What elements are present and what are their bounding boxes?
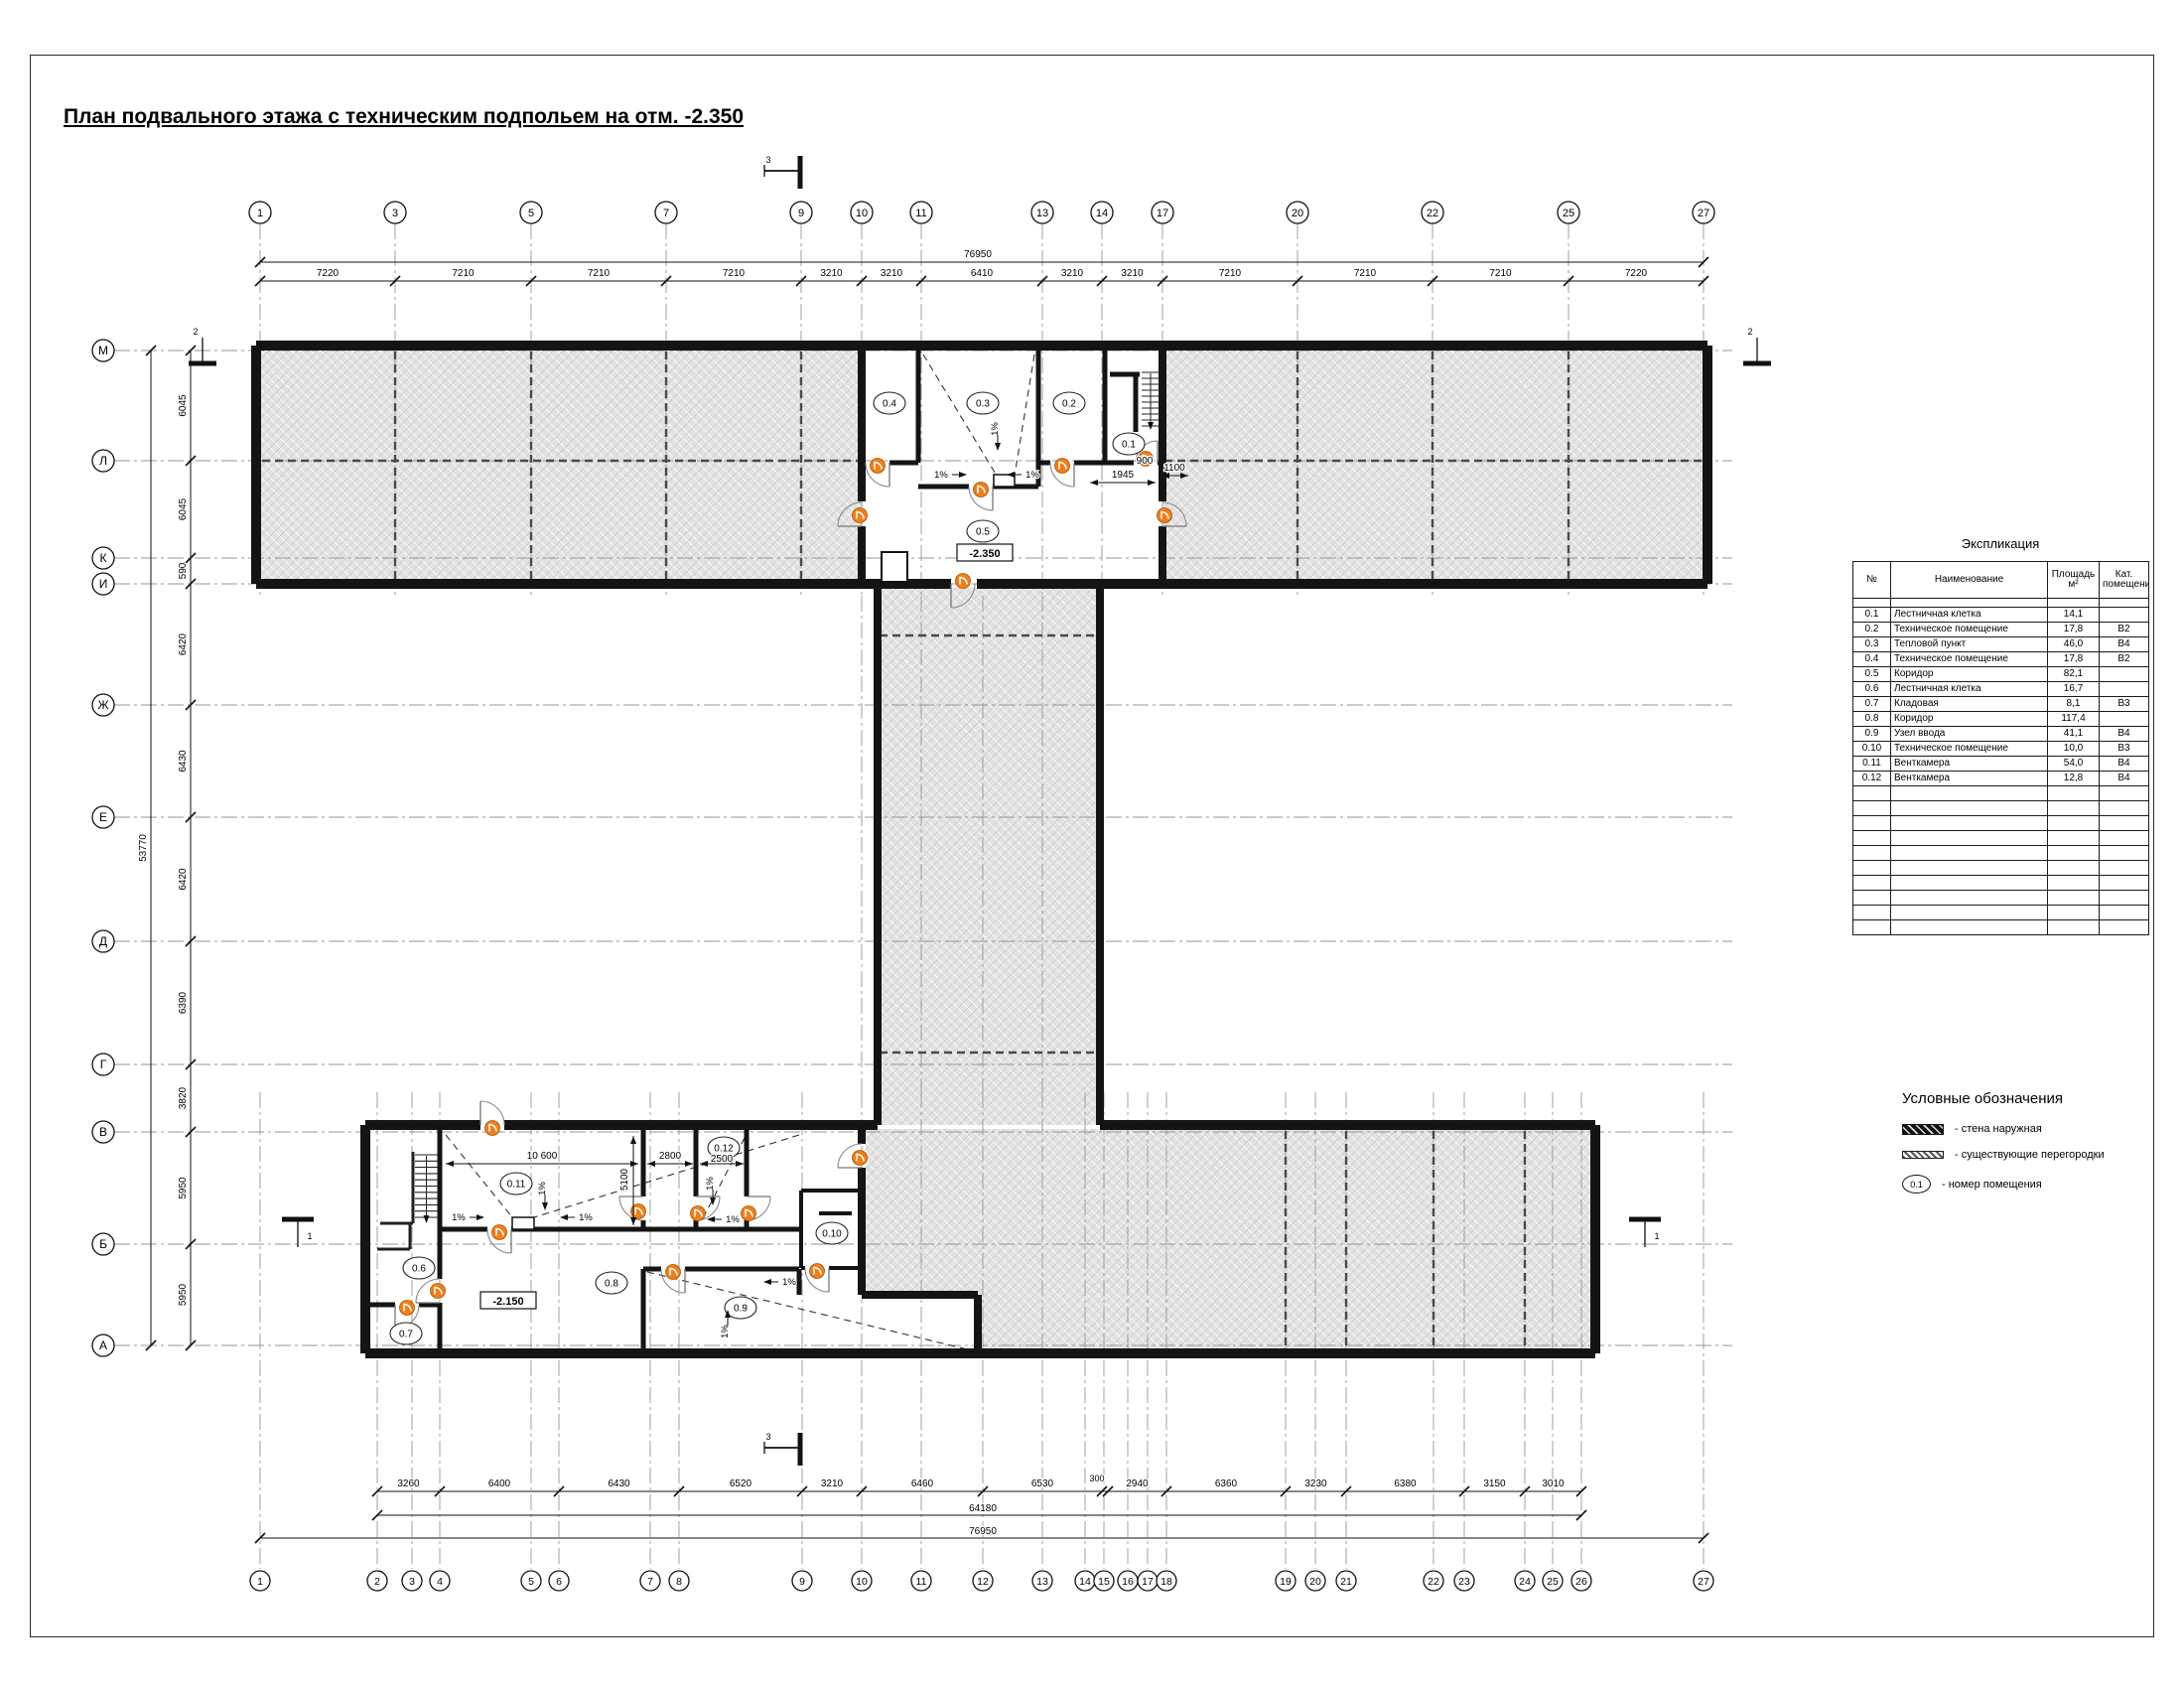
svg-text:7: 7 (663, 208, 669, 219)
axis-bubble-bottom: 7 (640, 1571, 660, 1591)
table-cell (2100, 608, 2149, 623)
svg-text:7: 7 (647, 1576, 653, 1588)
svg-text:1: 1 (307, 1231, 312, 1241)
explication-title: Экспликация (1852, 536, 2148, 551)
legend-item-label: - стена наружная (1955, 1123, 2042, 1135)
door-marker-icon (974, 483, 989, 497)
axis-bubble-top: 14 (1091, 202, 1113, 223)
table-cell: 82,1 (2048, 667, 2100, 682)
table-cell: 0.8 (1853, 712, 1891, 727)
svg-text:0.7: 0.7 (399, 1330, 413, 1340)
svg-text:6360: 6360 (1215, 1478, 1238, 1489)
svg-text:3260: 3260 (397, 1478, 420, 1489)
table-cell: 0.1 (1853, 608, 1891, 623)
axis-bubble-bottom: 10 (852, 1571, 872, 1591)
table-cell: В3 (2100, 697, 2149, 712)
outer-wall-swatch-icon (1902, 1124, 1944, 1135)
svg-text:16: 16 (1122, 1576, 1134, 1588)
svg-text:12: 12 (977, 1576, 989, 1588)
svg-text:3210: 3210 (820, 268, 843, 279)
axis-bubble-bottom: 22 (1424, 1571, 1443, 1591)
table-row: 0.2Техническое помещение17,8В2 (1853, 623, 2149, 637)
door-marker-icon (485, 1121, 500, 1136)
level-mark: -2.150 (480, 1292, 536, 1309)
table-cell: 0.2 (1853, 623, 1891, 637)
room-number-label: 0.2 (1053, 392, 1085, 414)
axis-bubble-top: 1 (249, 202, 271, 223)
table-empty-row (1853, 831, 2149, 846)
svg-text:Е: Е (99, 810, 107, 824)
svg-text:15: 15 (1098, 1576, 1110, 1588)
svg-text:М: М (98, 344, 108, 357)
svg-text:13: 13 (1036, 1576, 1048, 1588)
table-cell: 17,8 (2048, 652, 2100, 667)
svg-text:7210: 7210 (1219, 268, 1242, 279)
section-marker: 3 (764, 1432, 800, 1466)
table-empty-row (1853, 846, 2149, 861)
explication-header: №НаименованиеПлощадь м²Кат. помещения (1853, 562, 2149, 599)
svg-text:6420: 6420 (178, 633, 189, 655)
table-cell: 0.7 (1853, 697, 1891, 712)
room-number-label: 0.8 (596, 1272, 627, 1294)
drawing-sheet: План подвального этажа с техническим под… (0, 0, 2184, 1688)
axis-bubble-bottom: 6 (549, 1571, 569, 1591)
table-cell: Лестничная клетка (1891, 608, 2048, 623)
axis-bubble-left: И (92, 573, 114, 595)
table-cell: В4 (2100, 772, 2149, 786)
svg-text:2500: 2500 (711, 1154, 734, 1165)
axis-system-top: 7695072207210721072103210321064103210321… (249, 202, 1714, 286)
axis-bubble-top: 5 (520, 202, 542, 223)
room-number-label: 0.3 (967, 392, 999, 414)
svg-text:5950: 5950 (178, 1283, 189, 1306)
table-cell (2100, 667, 2149, 682)
table-empty-row (1853, 891, 2149, 906)
table-cell: 14,1 (2048, 608, 2100, 623)
svg-text:590: 590 (178, 562, 189, 579)
svg-text:5: 5 (528, 1576, 534, 1588)
axis-bubble-left: К (92, 547, 114, 569)
svg-text:0.10: 0.10 (822, 1229, 842, 1240)
section-marker: 3 (764, 155, 800, 189)
table-row: 0.6Лестничная клетка16,7 (1853, 682, 2149, 697)
axis-bubble-left: А (92, 1335, 114, 1356)
svg-text:0.2: 0.2 (1062, 399, 1076, 410)
axis-bubble-top: 25 (1558, 202, 1579, 223)
svg-text:Д: Д (99, 934, 107, 948)
table-cell: 8,1 (2048, 697, 2100, 712)
axis-bubble-top: 9 (790, 202, 812, 223)
table-cell: Тепловой пункт (1891, 637, 2048, 652)
svg-text:27: 27 (1698, 208, 1709, 219)
svg-text:3820: 3820 (178, 1086, 189, 1109)
svg-text:76950: 76950 (969, 1526, 997, 1537)
axis-bubble-bottom: 19 (1276, 1571, 1296, 1591)
svg-text:6520: 6520 (730, 1478, 752, 1489)
door-marker-icon (853, 508, 868, 523)
svg-text:-2.150: -2.150 (492, 1296, 523, 1308)
svg-text:7220: 7220 (1625, 268, 1648, 279)
svg-text:24: 24 (1519, 1576, 1531, 1588)
axis-bubble-left: Д (92, 930, 114, 952)
svg-text:6460: 6460 (911, 1478, 934, 1489)
svg-text:3210: 3210 (881, 268, 903, 279)
svg-text:1%: 1% (934, 470, 948, 481)
table-cell: Техническое помещение (1891, 652, 2048, 667)
svg-text:3: 3 (765, 155, 770, 165)
section-marker: 1 (1629, 1219, 1661, 1247)
room-number-label: 0.7 (390, 1323, 422, 1344)
table-cell (2100, 712, 2149, 727)
room-number-label: 0.4 (874, 392, 905, 414)
door-marker-icon (810, 1264, 825, 1279)
axis-bubble-bottom: 8 (669, 1571, 689, 1591)
svg-text:22: 22 (1428, 1576, 1439, 1588)
axis-bubble-left: М (92, 340, 114, 361)
table-row: 0.3Тепловой пункт46,0В4 (1853, 637, 2149, 652)
door-marker-icon (1055, 459, 1070, 474)
svg-text:3: 3 (765, 1432, 770, 1442)
axis-bubble-top: 20 (1287, 202, 1308, 223)
svg-text:0.11: 0.11 (507, 1180, 526, 1191)
table-cell: 54,0 (2048, 757, 2100, 772)
table-cell: В2 (2100, 652, 2149, 667)
axis-bubble-bottom: 18 (1157, 1571, 1176, 1591)
table-row: 0.8Коридор117,4 (1853, 712, 2149, 727)
legend-title: Условные обозначения (1902, 1090, 2105, 1107)
svg-text:300: 300 (1089, 1474, 1104, 1483)
svg-text:1: 1 (257, 1576, 263, 1588)
svg-text:3: 3 (392, 208, 398, 219)
svg-text:10: 10 (856, 208, 868, 219)
partition-swatch-icon (1902, 1151, 1944, 1159)
axis-bubble-top: 22 (1422, 202, 1443, 223)
axis-bubble-left: В (92, 1121, 114, 1143)
table-row: 0.7Кладовая8,1В3 (1853, 697, 2149, 712)
svg-text:25: 25 (1563, 208, 1574, 219)
legend-item-outer-wall: - стена наружная (1902, 1123, 2105, 1135)
svg-text:7210: 7210 (1354, 268, 1377, 279)
table-row: 0.11Венткамера54,0В4 (1853, 757, 2149, 772)
svg-text:18: 18 (1160, 1576, 1172, 1588)
table-cell: 17,8 (2048, 623, 2100, 637)
svg-text:19: 19 (1280, 1576, 1292, 1588)
table-cell: 0.4 (1853, 652, 1891, 667)
table-cell: Коридор (1891, 667, 2048, 682)
svg-text:8: 8 (676, 1576, 682, 1588)
svg-text:10 600: 10 600 (527, 1151, 558, 1162)
door-marker-icon (431, 1284, 446, 1299)
table-cell: 0.9 (1853, 727, 1891, 742)
axis-bubble-bottom: 20 (1305, 1571, 1325, 1591)
svg-text:53770: 53770 (138, 834, 149, 862)
table-cell: В3 (2100, 742, 2149, 757)
technical-underground-hatch (260, 350, 1704, 1349)
svg-text:1%: 1% (705, 1177, 716, 1191)
table-cell: 0.12 (1853, 772, 1891, 786)
table-cell: 12,8 (2048, 772, 2100, 786)
svg-text:64180: 64180 (969, 1503, 997, 1514)
table-cell: Коридор (1891, 712, 2048, 727)
level-mark: -2.350 (957, 544, 1013, 561)
axis-bubble-bottom: 25 (1543, 1571, 1563, 1591)
svg-text:2: 2 (193, 327, 198, 337)
axis-system-bottom: 3260640064306520321064606530300294063603… (250, 1474, 1713, 1591)
door-marker-icon (691, 1206, 706, 1221)
svg-text:0.9: 0.9 (734, 1304, 748, 1315)
svg-text:5950: 5950 (178, 1177, 189, 1199)
axis-bubble-bottom: 21 (1336, 1571, 1356, 1591)
svg-text:23: 23 (1458, 1576, 1470, 1588)
svg-text:900: 900 (1137, 456, 1154, 467)
svg-text:1%: 1% (537, 1182, 548, 1196)
svg-text:6: 6 (556, 1576, 562, 1588)
axis-bubble-bottom: 1 (250, 1571, 270, 1591)
svg-text:1%: 1% (1025, 470, 1039, 481)
svg-text:1: 1 (257, 208, 263, 219)
explication-col-header: Кат. помещения (2100, 562, 2149, 599)
table-cell: Венткамера (1891, 772, 2048, 786)
svg-text:Л: Л (99, 454, 107, 468)
svg-text:6430: 6430 (178, 750, 189, 773)
svg-text:0.4: 0.4 (883, 399, 896, 410)
axis-bubble-bottom: 15 (1094, 1571, 1114, 1591)
svg-text:0.8: 0.8 (605, 1279, 618, 1290)
room-number-label: 0.5 (967, 520, 999, 542)
axis-bubble-top: 27 (1693, 202, 1714, 223)
svg-text:4: 4 (437, 1576, 443, 1588)
axis-bubble-top: 3 (384, 202, 406, 223)
svg-text:6380: 6380 (1394, 1478, 1417, 1489)
legend-item-partition: - существующие перегородки (1902, 1149, 2105, 1161)
svg-text:7220: 7220 (317, 268, 340, 279)
table-cell: 0.10 (1853, 742, 1891, 757)
door-marker-icon (956, 574, 971, 589)
axis-bubble-bottom: 12 (973, 1571, 993, 1591)
axis-bubble-left: Ж (92, 694, 114, 716)
svg-text:3210: 3210 (1061, 268, 1084, 279)
svg-text:1%: 1% (579, 1212, 593, 1223)
table-row: 0.12Венткамера12,8В4 (1853, 772, 2149, 786)
svg-text:3: 3 (409, 1576, 415, 1588)
svg-text:0.3: 0.3 (976, 399, 990, 410)
svg-text:20: 20 (1292, 208, 1303, 219)
room-number-label: 0.11 (500, 1173, 532, 1195)
axis-bubble-bottom: 9 (792, 1571, 812, 1591)
svg-text:26: 26 (1575, 1576, 1587, 1588)
svg-text:1100: 1100 (1163, 463, 1185, 474)
svg-text:6530: 6530 (1031, 1478, 1054, 1489)
svg-text:3150: 3150 (1483, 1478, 1506, 1489)
table-cell: 0.3 (1853, 637, 1891, 652)
room-number-label: 0.6 (403, 1257, 435, 1279)
svg-text:Ж: Ж (97, 698, 108, 712)
svg-text:0.5: 0.5 (976, 527, 990, 538)
table-cell: В4 (2100, 727, 2149, 742)
table-cell: Техническое помещение (1891, 623, 2048, 637)
svg-text:13: 13 (1036, 208, 1048, 219)
svg-text:9: 9 (799, 1576, 805, 1588)
svg-text:11: 11 (915, 208, 926, 219)
svg-text:И: И (99, 577, 108, 591)
table-empty-row (1853, 861, 2149, 876)
explication-col-header: Площадь м² (2048, 562, 2100, 599)
table-cell: Кладовая (1891, 697, 2048, 712)
axis-bubble-bottom: 5 (521, 1571, 541, 1591)
svg-text:2: 2 (1747, 327, 1752, 337)
svg-text:1%: 1% (452, 1212, 466, 1223)
svg-text:1: 1 (1654, 1231, 1659, 1241)
table-cell: 16,7 (2048, 682, 2100, 697)
table-cell: В4 (2100, 757, 2149, 772)
axis-bubble-bottom: 26 (1571, 1571, 1591, 1591)
table-cell: 10,0 (2048, 742, 2100, 757)
svg-text:6045: 6045 (178, 394, 189, 417)
table-cell (2100, 682, 2149, 697)
explication-table: №НаименованиеПлощадь м²Кат. помещения 0.… (1852, 561, 2149, 935)
table-cell: 117,4 (2048, 712, 2100, 727)
table-row: 0.1Лестничная клетка14,1 (1853, 608, 2149, 623)
door-marker-icon (871, 459, 886, 474)
legend-panel: Условные обозначения - стена наружная - … (1902, 1090, 2105, 1207)
axis-bubble-bottom: 17 (1138, 1571, 1158, 1591)
door-marker-icon (742, 1206, 756, 1221)
svg-text:А: А (99, 1338, 107, 1352)
table-cell: Венткамера (1891, 757, 2048, 772)
axis-bubble-bottom: 23 (1454, 1571, 1474, 1591)
svg-text:14: 14 (1096, 208, 1108, 219)
svg-text:6420: 6420 (178, 868, 189, 891)
svg-text:27: 27 (1698, 1576, 1709, 1588)
explication-col-header: № (1853, 562, 1891, 599)
svg-text:Б: Б (99, 1237, 107, 1251)
door-marker-icon (1158, 508, 1172, 523)
svg-text:3210: 3210 (1121, 268, 1144, 279)
svg-text:2800: 2800 (659, 1151, 682, 1162)
table-row: 0.4Техническое помещение17,8В2 (1853, 652, 2149, 667)
table-empty-row (1853, 801, 2149, 816)
axis-bubble-bottom: 3 (402, 1571, 422, 1591)
svg-text:14: 14 (1079, 1576, 1091, 1588)
svg-text:1%: 1% (720, 1325, 731, 1338)
axis-bubble-bottom: 11 (911, 1571, 931, 1591)
axis-bubble-bottom: 2 (367, 1571, 387, 1591)
svg-text:Г: Г (100, 1057, 107, 1071)
axis-bubble-top: 13 (1031, 202, 1053, 223)
svg-text:7210: 7210 (452, 268, 475, 279)
door-marker-icon (853, 1151, 868, 1166)
table-empty-row (1853, 876, 2149, 891)
svg-text:21: 21 (1340, 1576, 1352, 1588)
table-cell: 0.6 (1853, 682, 1891, 697)
svg-text:20: 20 (1309, 1576, 1321, 1588)
table-empty-row (1853, 920, 2149, 935)
axis-system-left: 5377060456045590642064306420639038205950… (92, 340, 196, 1356)
svg-text:1%: 1% (990, 422, 1001, 436)
axis-bubble-bottom: 13 (1032, 1571, 1052, 1591)
axis-bubble-top: 7 (655, 202, 677, 223)
room-number-swatch-icon: 0.1 (1902, 1175, 1931, 1194)
svg-text:В: В (99, 1125, 107, 1139)
svg-text:7210: 7210 (723, 268, 746, 279)
room-number-label: 0.1 (1113, 433, 1145, 455)
table-row: 0.9Узел ввода41,1В4 (1853, 727, 2149, 742)
axis-bubble-top: 11 (910, 202, 932, 223)
table-cell: В4 (2100, 637, 2149, 652)
table-empty-row (1853, 906, 2149, 920)
svg-text:0.1: 0.1 (1122, 440, 1136, 451)
svg-text:3010: 3010 (1542, 1478, 1565, 1489)
section-marker: 2 (1743, 327, 1771, 363)
legend-item-label: - существующие перегородки (1955, 1149, 2105, 1161)
legend-item-label: - номер помещения (1942, 1179, 2042, 1191)
axis-bubble-top: 17 (1152, 202, 1173, 223)
table-empty-row (1853, 816, 2149, 831)
svg-text:-2.350: -2.350 (969, 548, 1000, 560)
legend-item-room-number: 0.1 - номер помещения (1902, 1175, 2105, 1194)
door-marker-icon (492, 1225, 507, 1240)
table-empty-row (1853, 786, 2149, 801)
svg-text:6390: 6390 (178, 991, 189, 1014)
svg-text:17: 17 (1157, 208, 1168, 219)
axis-bubble-left: Е (92, 806, 114, 828)
axis-bubble-bottom: 14 (1075, 1571, 1095, 1591)
axis-bubble-bottom: 24 (1515, 1571, 1535, 1591)
svg-text:К: К (100, 551, 107, 565)
table-cell: 0.11 (1853, 757, 1891, 772)
svg-text:1945: 1945 (1112, 470, 1135, 481)
svg-text:3230: 3230 (1304, 1478, 1327, 1489)
axis-bubble-left: Л (92, 450, 114, 472)
svg-text:1%: 1% (726, 1214, 740, 1225)
svg-text:10: 10 (856, 1576, 868, 1588)
svg-text:5: 5 (528, 208, 534, 219)
table-cell: Узел ввода (1891, 727, 2048, 742)
axis-bubble-bottom: 16 (1118, 1571, 1138, 1591)
svg-text:11: 11 (916, 1576, 927, 1588)
svg-text:0.12: 0.12 (714, 1144, 734, 1155)
svg-text:0.6: 0.6 (412, 1264, 426, 1275)
table-cell: В2 (2100, 623, 2149, 637)
door-marker-icon (666, 1265, 681, 1280)
svg-text:7210: 7210 (588, 268, 611, 279)
table-row: 0.5Коридор82,1 (1853, 667, 2149, 682)
svg-text:5100: 5100 (619, 1168, 630, 1191)
axis-bubble-bottom: 4 (430, 1571, 450, 1591)
svg-text:6400: 6400 (488, 1478, 511, 1489)
svg-text:2940: 2940 (1126, 1478, 1149, 1489)
svg-text:2: 2 (374, 1576, 380, 1588)
axis-bubble-left: Б (92, 1233, 114, 1255)
svg-text:6410: 6410 (971, 268, 994, 279)
axis-bubble-top: 10 (851, 202, 873, 223)
svg-text:22: 22 (1427, 208, 1438, 219)
svg-text:17: 17 (1142, 1576, 1154, 1588)
table-cell: 0.5 (1853, 667, 1891, 682)
axis-bubble-bottom: 27 (1694, 1571, 1713, 1591)
section-marker: 2 (189, 327, 216, 363)
table-cell: Техническое помещение (1891, 742, 2048, 757)
section-marker: 1 (282, 1219, 314, 1247)
table-cell: 41,1 (2048, 727, 2100, 742)
table-cell: Лестничная клетка (1891, 682, 2048, 697)
svg-text:76950: 76950 (964, 249, 992, 260)
door-marker-icon (400, 1301, 415, 1316)
svg-text:9: 9 (798, 208, 804, 219)
svg-text:25: 25 (1547, 1576, 1559, 1588)
explication-col-header: Наименование (1891, 562, 2048, 599)
svg-text:3210: 3210 (821, 1478, 844, 1489)
